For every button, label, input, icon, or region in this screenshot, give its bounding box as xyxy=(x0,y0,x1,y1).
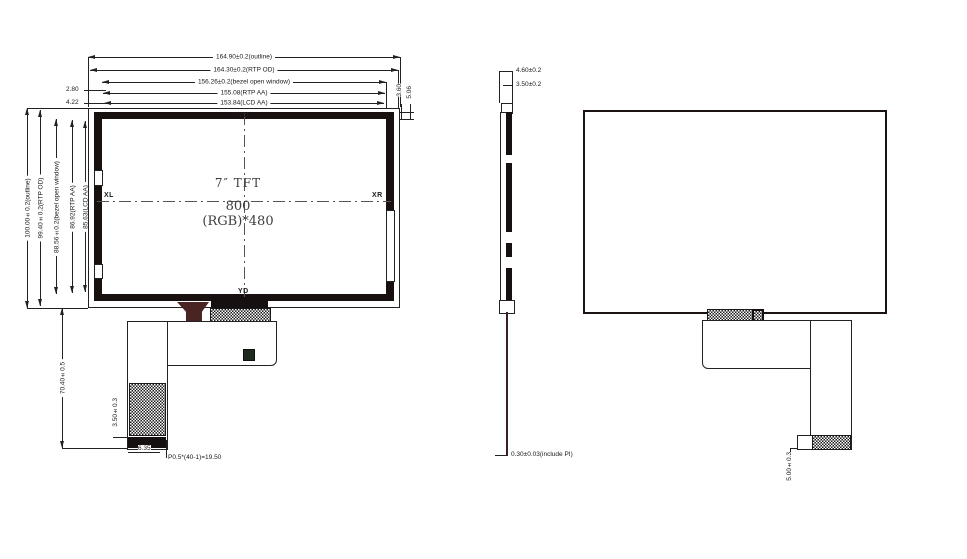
side-gap xyxy=(506,232,512,243)
lcd-connector xyxy=(211,297,268,308)
extension-line xyxy=(410,104,411,119)
bezel-notch xyxy=(94,170,103,186)
dim-rtp-aa-height: 86.92(RTP AA) xyxy=(72,120,73,293)
dim-label: 100.00±0.2(outline) xyxy=(25,175,32,240)
dim-line xyxy=(495,455,508,456)
dim-line xyxy=(499,71,513,72)
back-fpc-joint-mask xyxy=(811,321,849,366)
dim-offset-top1: 2.80 xyxy=(66,86,79,94)
dim-bezel-window-height: 88.56±0.2(bezel open window) xyxy=(56,119,57,294)
extension-line xyxy=(499,71,500,103)
extension-line xyxy=(166,440,167,458)
lcd-dimension-drawing: 164.90±0.2(outline) 164.30±0.2(RTP OD) 1… xyxy=(0,0,967,559)
dim-lcd-aa-width: 153.84(LCD AA) xyxy=(104,103,384,104)
dim-back-tab: 5.00±0.3 xyxy=(786,452,793,481)
dim-label: 164.90±0.2(outline) xyxy=(213,53,275,61)
leader-line xyxy=(128,452,160,453)
panel-resolution-label: 800 (RGB)*480 xyxy=(188,199,288,229)
dim-rtp-od-width: 164.30±0.2(RTP OD) xyxy=(90,70,398,71)
extension-line xyxy=(113,437,128,438)
dim-rtp-od-height: 99.40±0.2(RTP OD) xyxy=(40,110,41,306)
fpc-stiffener-hatch xyxy=(129,383,166,436)
panel-size-label: 7″ TFT xyxy=(188,176,288,190)
bezel-slot xyxy=(386,210,395,282)
dim-lcd-aa-height: 85.63(LCD AA) xyxy=(85,121,86,292)
probe-label-xl: XL xyxy=(104,192,114,199)
dim-label: 156.26±0.2(bezel open window) xyxy=(195,78,293,86)
dim-fpc-thickness: 0.30±0.03(include PI) xyxy=(511,451,573,459)
back-fpc-tab-hatch xyxy=(812,435,851,450)
dim-label: 155.08(RTP AA) xyxy=(217,89,270,97)
probe-label-yu: YU xyxy=(238,112,249,119)
extension-line xyxy=(512,71,513,103)
extension-line xyxy=(400,57,401,107)
probe-label-yd: YD xyxy=(238,288,249,295)
dim-fpc-pitch: P0.5*(40-1)=19.50 xyxy=(168,454,221,462)
extension-line xyxy=(401,104,402,119)
extension-line xyxy=(27,308,88,309)
leader-line xyxy=(84,90,106,91)
bezel-notch xyxy=(94,264,103,279)
side-fpc-line xyxy=(506,312,508,455)
dim-label: 164.30±0.2(RTP OD) xyxy=(210,66,277,74)
leader-line xyxy=(84,103,106,104)
dim-label: 86.92(RTP AA) xyxy=(70,182,77,231)
dim-fpc-length: 70.40±0.5 xyxy=(62,308,63,448)
extension-line xyxy=(88,57,89,107)
dim-label: 88.56±0.2(bezel open window) xyxy=(54,158,61,256)
dim-bezel-window-width: 156.26±0.2(bezel open window) xyxy=(102,82,386,83)
extension-line xyxy=(790,448,798,449)
dim-total-thickness: 4.60±0.2 xyxy=(516,67,541,75)
fpc-component xyxy=(243,349,255,361)
dim-fpc-stiffener: 3.50±0.3 xyxy=(112,398,119,427)
dim-offset-right1: 3.60 xyxy=(396,84,403,97)
side-gap xyxy=(506,257,512,268)
fpc-joint-mask xyxy=(128,322,166,364)
back-panel-outline xyxy=(583,110,887,314)
dim-outline-height: 100.00±0.2(outline) xyxy=(27,108,28,308)
dim-offset-top2: 4.22 xyxy=(66,99,79,107)
dim-label: 99.40±0.2(RTP OD) xyxy=(38,175,45,242)
side-backlight xyxy=(506,112,512,300)
probe-label-xr: XR xyxy=(372,192,383,199)
side-gap xyxy=(506,155,512,163)
dim-offset-right2: 5.06 xyxy=(406,86,413,99)
dim-rtp-aa-width: 155.08(RTP AA) xyxy=(103,93,385,94)
dim-outline-width: 164.90±0.2(outline) xyxy=(88,57,400,58)
dim-lcd-thickness: 3.50±0.2 xyxy=(516,81,541,89)
extension-line xyxy=(62,448,128,449)
extension-line xyxy=(27,108,88,109)
dim-label: 153.84(LCD AA) xyxy=(217,99,270,107)
dim-label: 70.40±0.5 xyxy=(60,359,67,397)
